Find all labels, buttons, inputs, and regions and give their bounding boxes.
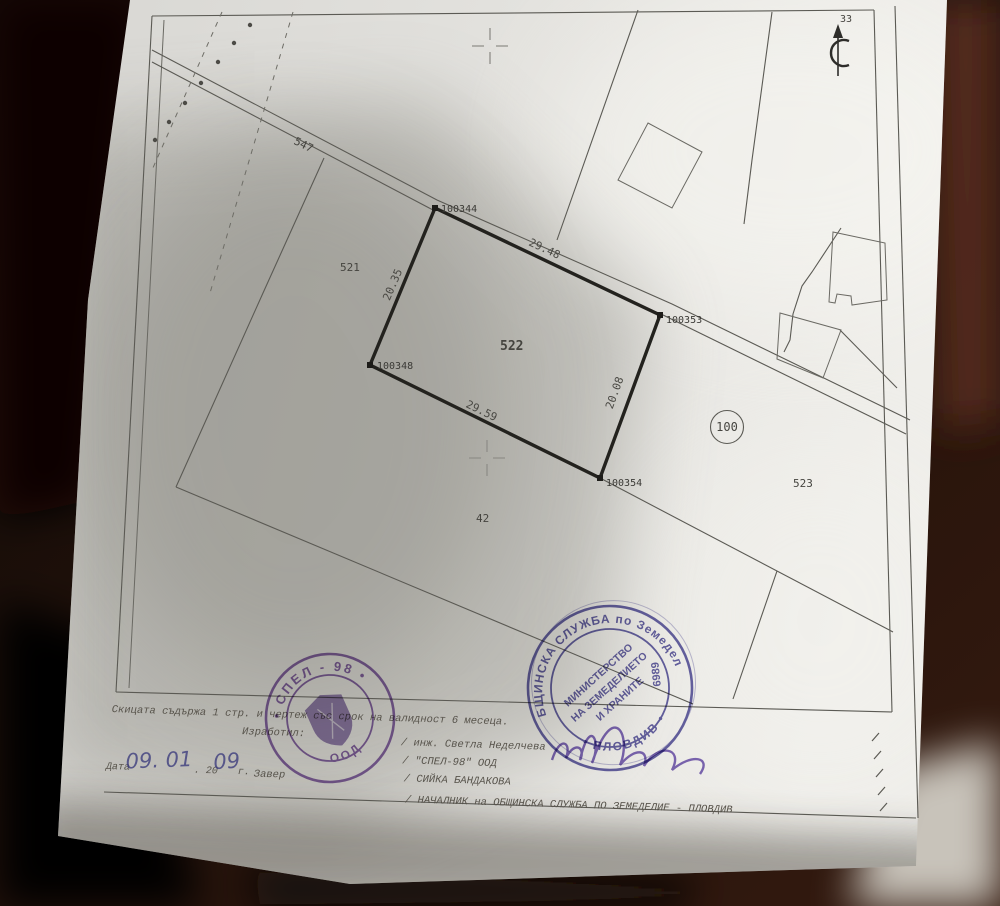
- vertex-label-100344: 100344: [441, 204, 477, 215]
- certified-by-label: Завер: [254, 769, 286, 782]
- handwritten-date-day-month: 09. 01: [125, 747, 193, 774]
- cadastral-sketch-canvas: 33 547 521 42 523 100 522 29.48 20.35 20…: [0, 0, 1000, 906]
- vertex-label-100354: 100354: [606, 478, 642, 489]
- parcel-label-42: 42: [476, 512, 489, 525]
- date-suffix: г.: [238, 767, 250, 778]
- parcel-label-521: 521: [340, 261, 360, 274]
- vertex-label-100348: 100348: [377, 361, 413, 372]
- photo-of-cadastral-sketch: 33 547 521 42 523 100 522 29.48 20.35 20…: [0, 0, 1000, 906]
- parcel-label-523: 523: [793, 477, 813, 490]
- parcel-label-100: 100: [716, 420, 738, 434]
- prepared-by-label: Изработил:: [242, 725, 305, 740]
- sheet-number: 33: [840, 14, 852, 25]
- parcel-label-522: 522: [500, 339, 523, 354]
- stamp-number: 6989: [649, 662, 663, 688]
- vertex-label-100353: 100353: [666, 315, 702, 326]
- handwritten-date-year: 09: [212, 748, 240, 774]
